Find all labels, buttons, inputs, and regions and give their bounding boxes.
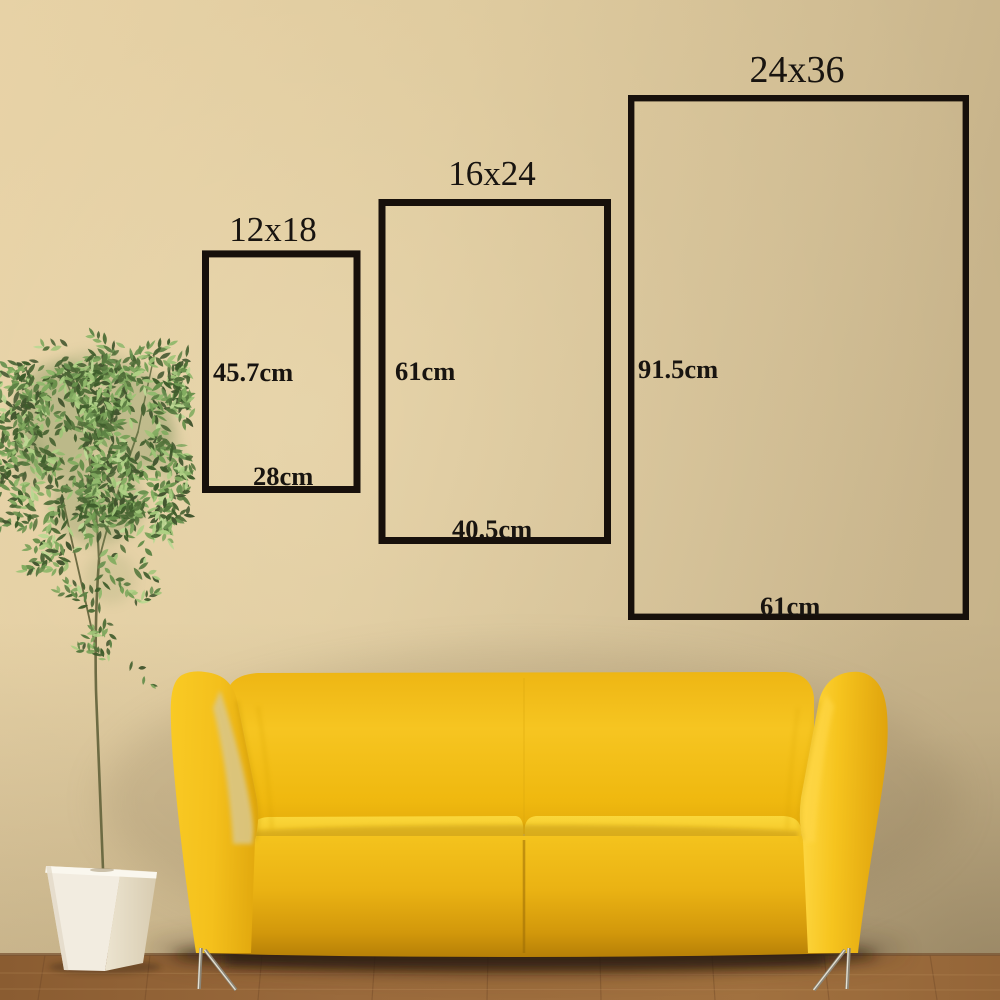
svg-text:61cm: 61cm bbox=[395, 356, 455, 386]
svg-text:28cm: 28cm bbox=[253, 461, 313, 491]
svg-text:45.7cm: 45.7cm bbox=[213, 357, 293, 387]
svg-text:16x24: 16x24 bbox=[448, 154, 536, 193]
svg-text:12x18: 12x18 bbox=[229, 210, 317, 249]
svg-text:40.5cm: 40.5cm bbox=[452, 514, 532, 544]
svg-text:24x36: 24x36 bbox=[750, 49, 845, 91]
svg-text:61cm: 61cm bbox=[760, 591, 820, 621]
svg-text:91.5cm: 91.5cm bbox=[638, 354, 718, 384]
